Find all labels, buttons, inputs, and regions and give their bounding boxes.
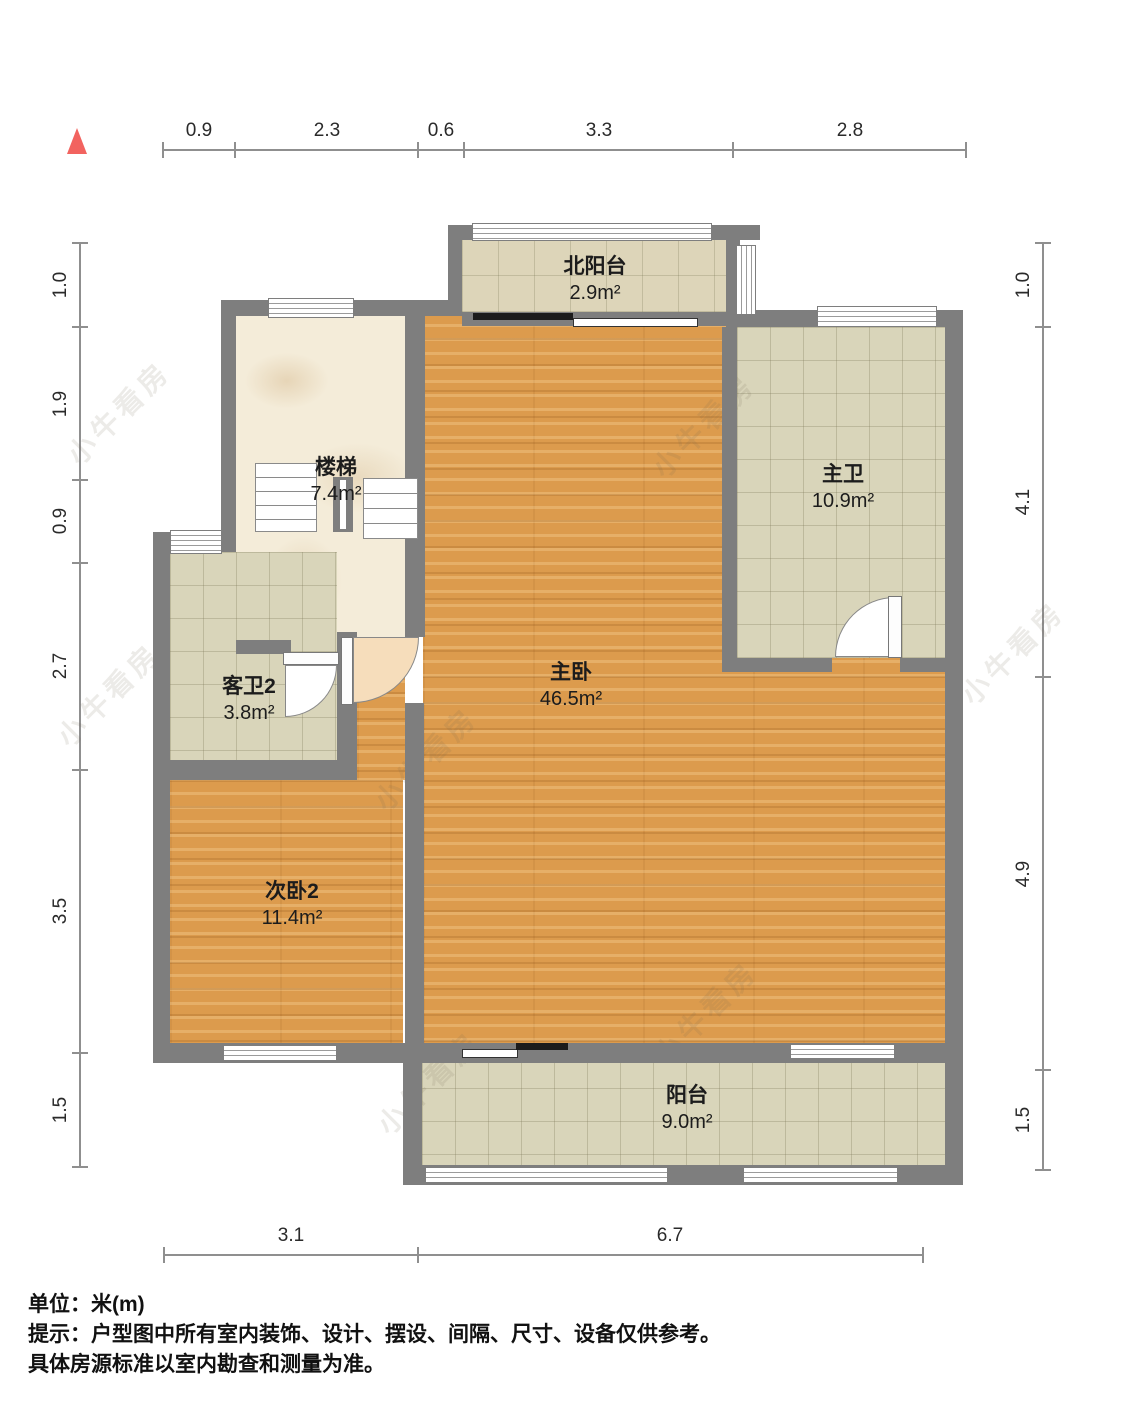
dim-tick — [732, 142, 734, 158]
window — [268, 298, 354, 318]
dim-tick — [72, 562, 88, 564]
wall — [153, 532, 170, 1063]
room-label-stairs: 楼梯 7.4m² — [310, 455, 361, 507]
dim-tick — [72, 326, 88, 328]
dim-tick — [234, 142, 236, 158]
dim-tick — [72, 479, 88, 481]
wall — [722, 327, 737, 672]
room-label-second-bedroom: 次卧2 11.4m² — [262, 879, 323, 931]
room-area: 2.9m² — [564, 280, 627, 306]
room-name: 主卧 — [540, 660, 602, 686]
room-label-guest-bath: 客卫2 3.8m² — [222, 674, 276, 726]
room-name: 阳台 — [661, 1083, 712, 1109]
wall — [722, 658, 832, 672]
window — [223, 1045, 337, 1061]
window — [472, 223, 712, 241]
dim-tick — [1035, 1169, 1051, 1171]
dim-tick — [72, 242, 88, 244]
dim-label-left: 1.0 — [50, 272, 72, 298]
stair-steps — [363, 478, 418, 539]
dim-label-left: 1.9 — [50, 391, 72, 417]
footer-units-note: 单位：米(m) — [28, 1288, 145, 1318]
room-area: 11.4m² — [262, 905, 323, 931]
dim-label-left: 0.9 — [50, 508, 72, 534]
dim-label-bottom: 3.1 — [278, 1225, 304, 1247]
dim-tick — [417, 142, 419, 158]
window — [743, 1167, 898, 1183]
dim-tick — [162, 142, 164, 158]
watermark: 小牛看房 — [57, 351, 179, 473]
room-name: 次卧2 — [262, 879, 323, 905]
room-label-master-bath: 主卫 10.9m² — [812, 462, 874, 514]
dim-line-top — [163, 149, 966, 151]
sliding-door — [516, 1043, 568, 1050]
dim-tick — [1035, 1069, 1051, 1071]
dim-label-right: 4.9 — [1013, 861, 1035, 887]
dim-label-top: 3.3 — [586, 120, 612, 142]
dim-tick — [72, 1166, 88, 1168]
room-name: 客卫2 — [222, 674, 276, 700]
dim-label-top: 0.6 — [428, 120, 454, 142]
door-swing — [353, 637, 419, 703]
wall — [900, 658, 963, 672]
dim-label-left: 1.5 — [50, 1097, 72, 1123]
dim-tick — [72, 769, 88, 771]
room-area: 46.5m² — [540, 686, 602, 712]
room-label-balcony: 阳台 9.0m² — [661, 1083, 712, 1135]
wall — [153, 760, 357, 780]
window — [425, 1167, 668, 1183]
window — [170, 530, 222, 554]
dim-tick — [922, 1247, 924, 1263]
sliding-door — [462, 1049, 518, 1058]
window — [817, 306, 937, 327]
room-label-master-bedroom: 主卧 46.5m² — [540, 660, 602, 712]
room-name: 北阳台 — [564, 254, 627, 280]
room-area: 7.4m² — [310, 481, 361, 507]
sliding-door — [473, 313, 573, 320]
window — [790, 1044, 895, 1059]
stair-steps — [255, 463, 317, 532]
dim-tick — [1035, 676, 1051, 678]
dim-tick — [72, 1052, 88, 1054]
dim-tick — [1035, 242, 1051, 244]
dim-tick — [1035, 326, 1051, 328]
room-area: 10.9m² — [812, 488, 874, 514]
dim-line-bottom — [164, 1254, 923, 1256]
floor-plan-page: 0.9 2.3 0.6 3.3 2.8 1.0 1.9 0.9 2.7 3.5 … — [0, 0, 1125, 1410]
dim-label-top: 0.9 — [186, 120, 212, 142]
dim-label-right: 4.1 — [1013, 489, 1035, 515]
dim-label-top: 2.8 — [837, 120, 863, 142]
dim-tick — [163, 1247, 165, 1263]
door-leaf — [341, 637, 353, 705]
dim-label-right: 1.5 — [1013, 1107, 1035, 1133]
dim-label-left: 2.7 — [50, 653, 72, 679]
door-leaf — [888, 596, 902, 658]
north-arrow-icon — [67, 128, 87, 154]
room-name: 主卫 — [812, 462, 874, 488]
watermark: 小牛看房 — [47, 633, 169, 755]
dim-line-right — [1042, 243, 1044, 1170]
window — [736, 245, 756, 315]
door-leaf — [283, 652, 339, 665]
wall — [405, 300, 425, 637]
room-area: 3.8m² — [222, 700, 276, 726]
dim-tick — [463, 142, 465, 158]
watermark: 小牛看房 — [951, 591, 1073, 713]
sliding-door — [573, 318, 698, 327]
room-name: 楼梯 — [310, 455, 361, 481]
dim-label-right: 1.0 — [1013, 272, 1035, 298]
wall — [221, 300, 236, 552]
dim-tick — [417, 1247, 419, 1263]
dim-label-top: 2.3 — [314, 120, 340, 142]
footer-disclaimer-1: 提示：户型图中所有室内装饰、设计、摆设、间隔、尺寸、设备仅供参考。 — [28, 1318, 721, 1348]
dim-label-bottom: 6.7 — [657, 1225, 683, 1247]
room-area: 9.0m² — [661, 1109, 712, 1135]
dim-tick — [965, 142, 967, 158]
wall — [405, 703, 424, 1063]
room-label-north-balcony: 北阳台 2.9m² — [564, 254, 627, 306]
dim-label-left: 3.5 — [50, 898, 72, 924]
footer-disclaimer-2: 具体房源标准以室内勘查和测量为准。 — [28, 1348, 385, 1378]
